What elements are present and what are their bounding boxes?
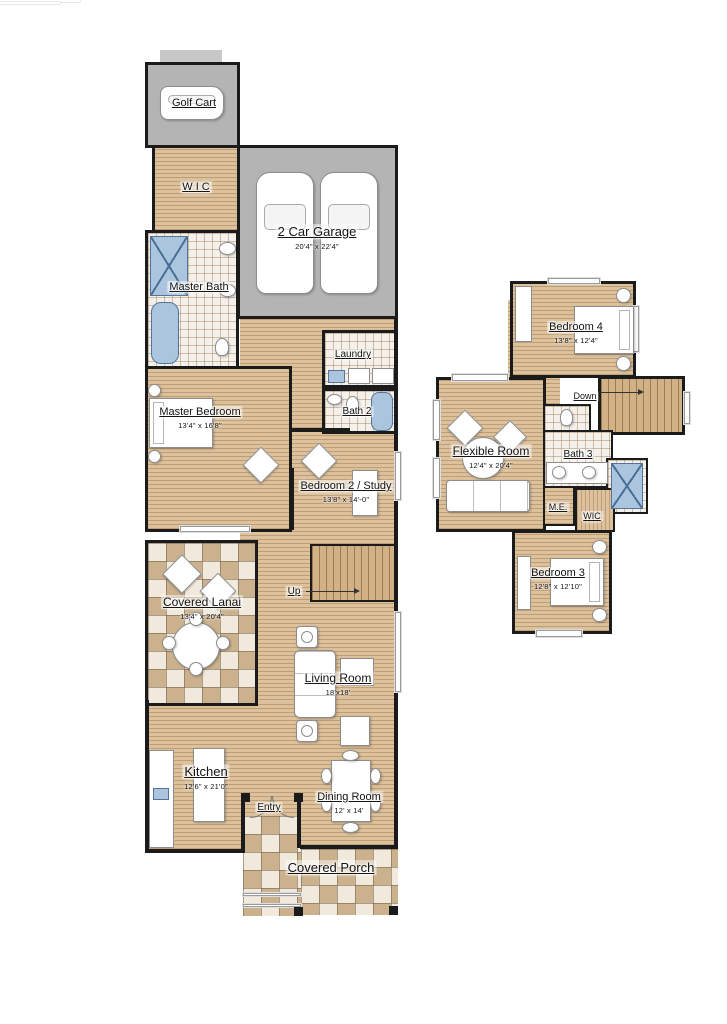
sink-icon <box>582 466 596 479</box>
kitchen-south-wall <box>145 849 245 853</box>
bathtub-icon <box>371 392 393 431</box>
label-flexible-room: Flexible Room12'4" x 20'4" <box>451 441 532 470</box>
kitchen-sink-icon <box>153 788 169 800</box>
nightstand-icon <box>616 356 631 371</box>
dining-chair-icon <box>342 822 359 833</box>
label-me: M.E. <box>547 496 570 516</box>
label-dining-room: Dining Room12' x 14' <box>315 786 383 815</box>
label-up: Up <box>286 580 303 600</box>
label-laundry: Laundry <box>333 343 373 363</box>
entry-post <box>241 793 250 802</box>
label-bath3: Bath 3 <box>562 443 595 463</box>
room-master-bedroom <box>145 366 292 532</box>
nightstand-icon <box>616 288 631 303</box>
patio-chair-icon <box>189 662 203 676</box>
window <box>433 400 440 440</box>
window <box>452 374 508 381</box>
dining-south-wall <box>300 845 398 849</box>
entry-post <box>294 793 303 802</box>
dining-chair-icon <box>342 750 359 761</box>
label-master-bedroom: Master Bedroom13'4" x 16'8" <box>157 401 242 430</box>
label-bedroom3: Bedroom 312'8" x 12'10" <box>529 562 587 591</box>
label-down: Down <box>571 385 598 405</box>
window <box>180 526 250 532</box>
stair-stringer <box>0 2 60 4</box>
patio-chair-icon <box>162 636 176 650</box>
floor-plan-canvas: Golf Cart W I C 2 Car Garage20'4" x 22'4… <box>0 0 727 1024</box>
laundry-sink-icon <box>328 370 345 383</box>
sink-icon <box>552 466 566 479</box>
toilet-icon <box>215 338 229 356</box>
porch-step <box>243 893 301 896</box>
label-lanai: Covered Lanai13'4" x 20'4" <box>161 592 243 621</box>
down-arrow-icon <box>600 392 638 393</box>
shower-icon <box>611 463 643 509</box>
window <box>433 458 440 498</box>
sink-icon <box>219 242 236 255</box>
window <box>536 630 582 637</box>
east-wall <box>394 316 398 846</box>
label-wic: W I C <box>180 176 212 196</box>
lamp-icon <box>301 631 313 643</box>
window <box>395 612 401 692</box>
washer-icon <box>348 368 370 384</box>
window <box>548 278 600 284</box>
label-bath2: Bath 2 <box>341 400 374 420</box>
label-entry: Entry <box>255 796 282 816</box>
dining-chair-icon <box>321 768 332 784</box>
label-garage: 2 Car Garage20'4" x 22'4" <box>276 222 359 251</box>
closet <box>515 286 532 342</box>
porch-step <box>243 904 301 907</box>
entry-east-wall <box>297 802 301 848</box>
entry-west-wall <box>241 802 245 853</box>
label-bedroom4: Bedroom 413'8" x 12'4" <box>547 316 605 345</box>
nightstand-icon <box>592 608 607 622</box>
label-covered-porch: Covered Porch <box>286 858 377 878</box>
lamp-icon <box>301 725 313 737</box>
label-bedroom2: Bedroom 2 / Study13'8" x 14'-0" <box>298 475 393 504</box>
toilet-icon <box>560 409 573 426</box>
patio-chair-icon <box>216 636 230 650</box>
bedroom2-west-wall <box>290 468 294 530</box>
nightstand-icon <box>148 450 161 463</box>
nightstand-icon <box>592 540 607 554</box>
bathtub-icon <box>151 302 179 364</box>
up-arrow-icon <box>306 591 354 592</box>
dining-chair-icon <box>370 768 381 784</box>
label-wic2: WIC <box>581 505 603 525</box>
label-master-bath: Master Bath <box>167 276 230 296</box>
bedroom2-north-wall <box>292 428 350 432</box>
label-kitchen: Kitchen12'6" x 21'0" <box>182 762 229 791</box>
stairs-down <box>598 376 685 435</box>
label-golf-cart: Golf Cart <box>170 92 218 112</box>
porch-post <box>294 907 303 916</box>
label-living-room: Living Room18'x18' <box>303 668 374 697</box>
nightstand-icon <box>148 384 161 397</box>
dryer-icon <box>372 368 394 384</box>
porch-post <box>389 906 398 915</box>
window <box>684 392 690 424</box>
sofa <box>446 480 530 512</box>
armchair-icon <box>340 716 370 746</box>
window <box>395 452 401 500</box>
stairs-up <box>310 544 396 602</box>
